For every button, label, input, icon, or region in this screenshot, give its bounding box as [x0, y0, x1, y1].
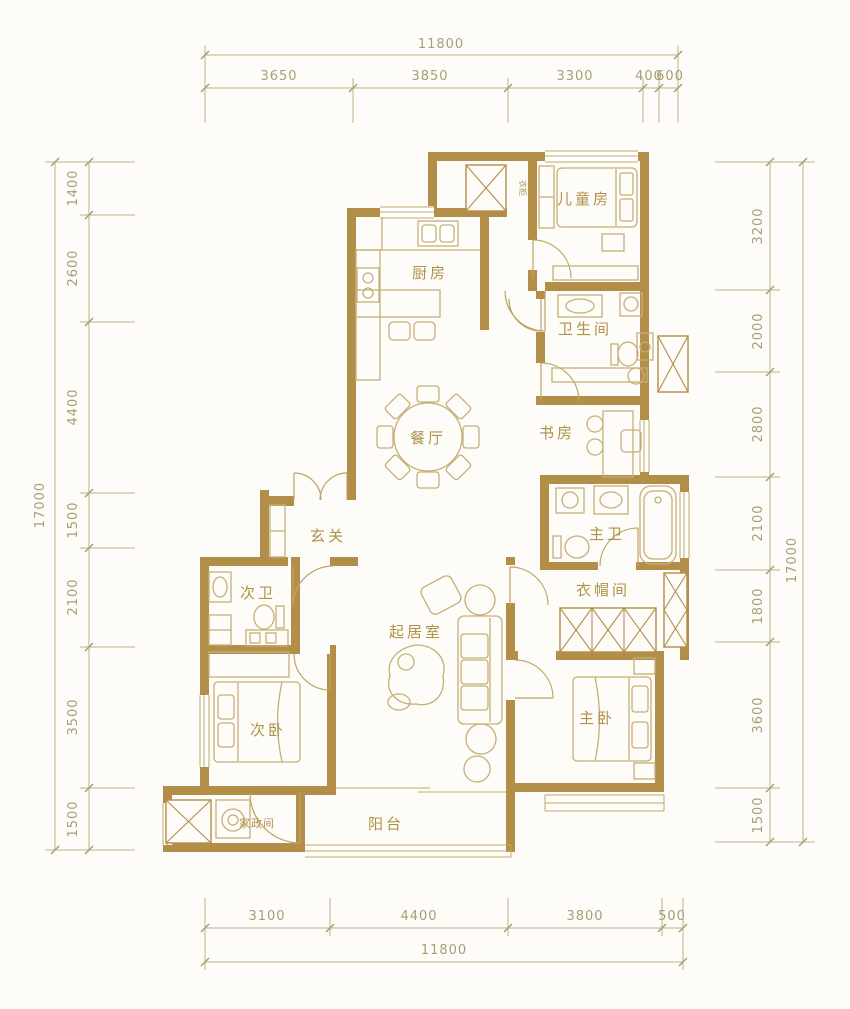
dim-top-total: 11800	[418, 37, 464, 52]
dim-left-seg-5: 2100	[66, 578, 81, 615]
duct-shaft-right	[658, 336, 688, 392]
dim-bottom-seg-3: 3800	[566, 909, 603, 924]
sliding-door-balcony	[336, 788, 506, 792]
windows	[162, 150, 690, 857]
label-second-bedroom: 次卧	[250, 721, 286, 739]
window-second-bedroom-left	[199, 695, 210, 767]
dim-top-seg-2: 3850	[411, 69, 448, 84]
kitchen-stool	[389, 322, 410, 340]
duct-shaft-bottom-left	[166, 800, 211, 843]
dim-right-seg-1: 3200	[751, 207, 766, 244]
label-dining: 餐厅	[410, 429, 446, 447]
master-nightstand	[634, 763, 655, 779]
window-kitchen-top	[380, 206, 434, 219]
dim-bottom-total: 11800	[421, 943, 467, 958]
label-second-bath: 次卫	[240, 584, 276, 602]
dim-right-seg-6: 3600	[751, 696, 766, 733]
dimension-chain-right: 3200 2000 2800 2100 1800 3600 1500 17000	[715, 158, 815, 846]
living-side-table	[465, 585, 495, 615]
label-wardrobe: 衣柜	[518, 180, 528, 196]
label-balcony: 阳台	[368, 815, 404, 833]
master-bathtub	[640, 486, 676, 564]
label-kitchen: 厨房	[412, 264, 448, 282]
dim-left-seg-4: 1500	[66, 501, 81, 538]
door-bathroom	[509, 299, 541, 331]
entrance-double-door	[294, 473, 347, 500]
dim-left-seg-7: 1500	[66, 800, 81, 837]
cloakroom-closet	[560, 608, 656, 652]
master-bath-toilet	[565, 536, 589, 558]
second-bath-toilet-tank	[276, 606, 284, 628]
children-desk	[602, 234, 624, 251]
label-foyer: 玄关	[310, 527, 346, 545]
label-cloakroom: 衣帽间	[576, 581, 630, 599]
children-room-furniture	[539, 166, 638, 280]
dim-right-seg-3: 2800	[751, 405, 766, 442]
door-cloakroom	[510, 567, 548, 605]
study-bookshelf	[552, 368, 647, 382]
master-nightstand	[634, 658, 655, 674]
dim-right-total: 17000	[785, 537, 800, 583]
living-coffee-table	[389, 645, 444, 705]
bathroom-toilet	[618, 342, 638, 366]
toilet-tank	[611, 344, 618, 365]
bathroom-vanity	[558, 295, 602, 317]
door-master-bedroom	[515, 660, 553, 698]
duct-shaft-top	[466, 165, 506, 211]
label-living: 起居室	[389, 623, 443, 641]
master-toilet-tank	[553, 536, 561, 558]
study-desk	[603, 411, 633, 477]
label-housekeeping: 家政间	[239, 816, 275, 830]
dim-right-seg-5: 1800	[751, 587, 766, 624]
kitchen-stool	[414, 322, 435, 340]
study-chair	[587, 416, 603, 432]
dim-top-seg-3: 3300	[556, 69, 593, 84]
walls	[163, 152, 689, 852]
living-sofa	[458, 616, 502, 724]
dim-right-seg-7: 1500	[751, 796, 766, 833]
dim-bottom-seg-4: 500	[658, 909, 686, 924]
study-furniture	[552, 368, 647, 477]
dim-left-seg-3: 4400	[66, 388, 81, 425]
dim-right-seg-2: 2000	[751, 312, 766, 349]
dim-right-seg-4: 2100	[751, 504, 766, 541]
label-master-bedroom: 主卧	[579, 709, 615, 727]
kitchen-counter	[356, 217, 480, 380]
window-children-top	[545, 150, 638, 163]
second-bedroom-furniture	[209, 652, 300, 762]
study-chair	[621, 430, 641, 452]
duct-shaft-cloakroom-right	[664, 573, 687, 647]
living-side-table	[466, 724, 496, 754]
floor-plan-canvas: 11800 3650 3850 3300 400 600 3100 4400 3…	[0, 0, 850, 1009]
window-master-bath-right	[679, 492, 690, 558]
dim-left-seg-1: 1400	[66, 169, 81, 206]
dim-top-seg-1: 3650	[260, 69, 297, 84]
second-bedroom-wardrobe	[209, 652, 289, 677]
label-master-bath: 主卫	[589, 525, 625, 543]
living-armchair	[419, 574, 463, 616]
dim-left-seg-2: 2600	[66, 249, 81, 286]
dimension-chain-top: 11800 3650 3850 3300 400 600	[201, 37, 684, 123]
label-children-room: 儿童房	[557, 190, 611, 208]
children-dresser	[553, 266, 638, 280]
window-balcony-glazing	[305, 845, 511, 857]
second-bath-toilet	[254, 605, 274, 629]
study-chair	[587, 439, 603, 455]
dim-left-seg-6: 3500	[66, 698, 81, 735]
dimension-chain-bottom: 3100 4400 3800 500 11800	[201, 898, 687, 970]
dim-bottom-seg-2: 4400	[400, 909, 437, 924]
dimension-chain-left: 1400 2600 4400 1500 2100 3500 1500 17000	[33, 158, 135, 854]
floor-plan-page: 11800 3650 3850 3300 400 600 3100 4400 3…	[0, 0, 850, 1009]
dim-bottom-seg-1: 3100	[248, 909, 285, 924]
label-bathroom: 卫生间	[558, 320, 612, 338]
living-room-furniture	[388, 574, 502, 782]
dim-left-total: 17000	[33, 482, 48, 528]
door-children-room	[533, 240, 571, 278]
dim-top-seg-5: 600	[656, 69, 684, 84]
label-study: 书房	[539, 424, 575, 442]
window-master-bay	[545, 795, 664, 811]
living-plant	[464, 756, 490, 782]
master-bath-vanity	[594, 486, 628, 514]
